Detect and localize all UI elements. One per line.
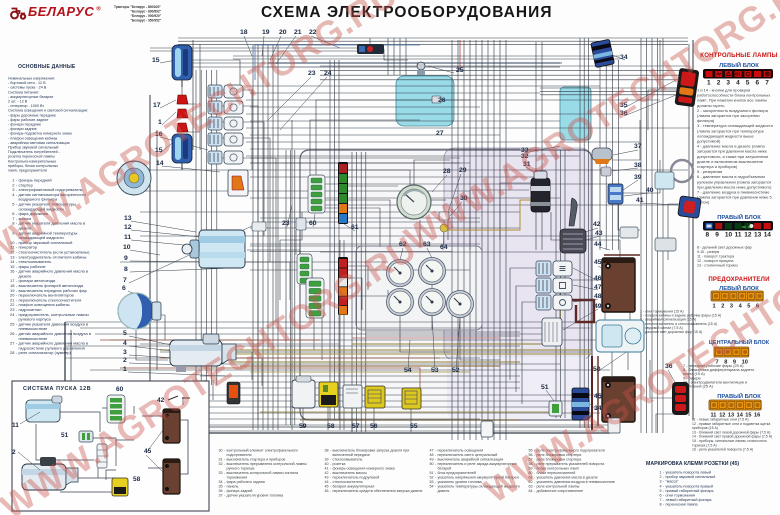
svg-text:60: 60 [116, 386, 124, 393]
svg-text:45: 45 [144, 448, 152, 455]
svg-text:11: 11 [12, 422, 19, 429]
svg-text:СИСТЕМА ПУСКА 12В: СИСТЕМА ПУСКА 12В [23, 386, 91, 392]
svg-text:2: 2 [12, 449, 16, 456]
svg-text:51: 51 [61, 432, 69, 439]
svg-text:58: 58 [133, 476, 141, 483]
svg-text:42: 42 [157, 397, 165, 404]
